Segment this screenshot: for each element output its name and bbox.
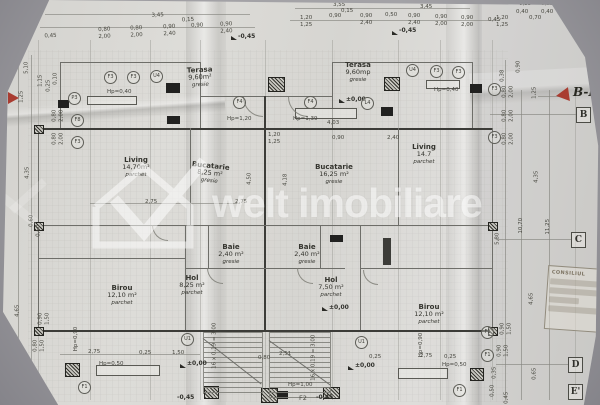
window-sill [398, 368, 448, 379]
hp-label: Hp=0,40 [434, 87, 458, 93]
dim-label: 5,10 [24, 62, 30, 74]
dim-label: 0,90 [332, 136, 344, 142]
room-floor: gresie [277, 259, 337, 266]
wall-segment [38, 330, 492, 332]
room-label-birou-left: Birou 12,10 m² parchet [92, 284, 152, 306]
section-triangle-icon [8, 92, 19, 104]
wall-segment [264, 96, 266, 332]
dim-label: 2,75 [235, 200, 247, 206]
dim-label: 4,03 [327, 121, 339, 127]
dim-label: 2,00 [509, 133, 515, 145]
room-label-terasa-left: Terasa 9,60m² gresie [169, 64, 230, 89]
dimension-line [521, 90, 522, 400]
level-label: ±0,00 [187, 360, 207, 367]
grid-marker: U4 [150, 70, 163, 83]
room-label-hol-left: Hol 8,25 m² parchet [162, 274, 222, 296]
grid-marker: F3 [488, 131, 501, 144]
window-sill [87, 96, 137, 105]
grid-marker: F1 [78, 381, 91, 394]
stamp-text-row [549, 296, 579, 304]
wall-segment [38, 258, 185, 259]
grid-marker: F3 [104, 71, 117, 84]
column [34, 327, 44, 336]
wall-segment [472, 62, 473, 128]
dim-label: 0,50 [385, 13, 397, 19]
dim-label: 2,40 [387, 136, 399, 142]
dim-label: 1,50 [40, 340, 46, 352]
dim-label: 2,00 [461, 23, 473, 29]
dim-label: 2,00 [59, 110, 65, 122]
dim-label: 2,00 [98, 35, 110, 41]
dim-label: 0,90 [408, 14, 420, 20]
dim-label: 0,25 [369, 355, 381, 361]
dim-label: 1,15 [38, 75, 44, 87]
stamp-text-row [548, 305, 600, 315]
room-label-hol-right: Hol 7,50 m² parchet [301, 276, 361, 298]
dim-label: 2,00 [435, 22, 447, 28]
hp-label: Hp=1,00 [288, 382, 312, 388]
dim-label: 2,00 [509, 110, 515, 122]
column [470, 368, 484, 381]
hp-label: Hp=0,90 [418, 333, 424, 357]
dim-label: 4,35 [25, 167, 31, 179]
dim-label: 1,20 [268, 133, 280, 139]
dimension-line [18, 55, 19, 390]
dim-label: 0,90 [11, 57, 17, 69]
column [58, 100, 69, 108]
column [65, 363, 80, 377]
dim-label: 0,35 [33, 374, 39, 386]
dim-label: 2,40 [163, 32, 175, 38]
grid-marker: F1 [453, 384, 466, 397]
grid-marker: F4 [304, 96, 317, 109]
dim-label: 3,45 [152, 13, 164, 19]
dim-label: 0,95 [8, 373, 14, 385]
stamp-title: CONSILIUL [552, 269, 600, 279]
grid-letter: E' [568, 384, 583, 400]
grid-marker: F3 [430, 65, 443, 78]
grid-line [150, 40, 151, 400]
dim-label: 2,00 [130, 33, 142, 39]
room-area: 2,40 m² [277, 251, 337, 258]
dim-label: 0,80 [33, 340, 39, 352]
dim-label: 0,40 [516, 10, 528, 16]
f2-label: F2 [299, 395, 307, 402]
grid-marker: F1 [481, 349, 494, 362]
dim-label: 2,75 [145, 200, 157, 206]
stair-note: 16 x 0,19 = 3,00 [311, 335, 317, 381]
grid-letter: D [568, 357, 583, 373]
section-label: B-B [573, 85, 599, 99]
dim-label: 0,80 [502, 133, 508, 145]
dim-label: 1,25 [19, 91, 25, 103]
section-triangle-icon [555, 87, 570, 103]
column [268, 77, 285, 92]
dim-label: 0,40 [541, 10, 553, 16]
column [330, 235, 343, 242]
level-label: -0,45 [316, 394, 333, 401]
column [381, 107, 393, 116]
dim-label: 2,00 [59, 133, 65, 145]
photo-of-floor-plan: 3,45 0,45 0,80 2,00 0,80 2,00 0,90 2,40 … [0, 0, 600, 405]
wall-segment [360, 268, 492, 269]
room-label-baie-left: Baie 2,40 m² gresie [201, 243, 261, 265]
dimension-line [295, 8, 470, 9]
level-flag-icon [231, 36, 237, 40]
hp-label: Hp=0,90 [73, 327, 79, 351]
room-area: 14,70m² [106, 164, 166, 171]
hp-label: Hp=0,50 [99, 361, 123, 367]
dim-label: 4,65 [529, 293, 535, 305]
dimension-line [496, 239, 572, 240]
dim-label: 5,80 [495, 233, 501, 245]
dim-label: 0,90 [435, 15, 447, 21]
room-area: 2,40 m² [201, 251, 261, 258]
room-floor: gresie [328, 77, 388, 84]
dimension-line [90, 203, 240, 204]
room-area: 12,10 m² [399, 311, 459, 318]
dim-label: 0,90 [516, 61, 522, 73]
dim-label: 1,50 [172, 351, 184, 357]
room-label-bucatarie-right: Bucatarie 16,25 m² gresie [303, 163, 365, 185]
dim-label: 0,25 [46, 80, 52, 92]
dim-label: 1,20 [496, 16, 508, 22]
room-label-baie-right: Baie 2,40 m² gresie [277, 243, 337, 265]
dim-label: 1,25 [268, 140, 280, 146]
stamp-text-row [550, 278, 600, 288]
hp-label: Hp=1,39 [293, 116, 317, 122]
grid-marker: U1 [355, 336, 368, 349]
stair-note: 16 x 0,19 = 3,00 [212, 323, 218, 369]
room-label-living-left: Living 14,70m² parchet [106, 156, 166, 178]
dim-label: 1,50 [45, 313, 51, 325]
level-label: -0,45 [238, 33, 255, 40]
grid-marker: F3 [71, 136, 84, 149]
column [34, 125, 44, 134]
dim-label: 2,00 [509, 86, 515, 98]
dim-label: 0,45 [44, 34, 56, 40]
hp-label: Hp=0,50 [442, 362, 466, 368]
dim-label: 0,45 [504, 392, 510, 404]
column [470, 84, 482, 93]
dim-label: 0,90 [500, 323, 506, 335]
room-floor: parchet [106, 172, 166, 179]
dim-label: 1,20 [300, 16, 312, 22]
dim-label: 4,18 [283, 174, 289, 186]
dim-label: 1,25 [300, 23, 312, 29]
dimension-line [496, 364, 568, 365]
level-flag-icon [348, 366, 354, 370]
level-flag-icon [339, 99, 345, 103]
room-area: 16,25 m² [303, 171, 365, 178]
room-floor: parchet [394, 159, 454, 166]
dim-label: 0,90 [461, 16, 473, 22]
grid-line [440, 40, 441, 400]
room-floor: parchet [92, 300, 152, 307]
dim-label: 0,80 [502, 110, 508, 122]
room-label-terasa-right: Terasa 9,60mp gresie [328, 61, 388, 83]
grid-letter: B [576, 107, 591, 123]
dim-group-top-left: 3,45 0,45 0,80 2,00 0,80 2,00 0,90 2,40 … [0, 0, 261, 56]
dim-label: 2,40 [220, 29, 232, 35]
dim-label: 0,65 [532, 368, 538, 380]
grid-marker: F3 [127, 71, 140, 84]
dim-label: 2,75 [88, 350, 100, 356]
paper: 3,45 0,45 0,80 2,00 0,80 2,00 0,90 2,40 … [0, 0, 600, 405]
room-floor: gresie [303, 179, 365, 186]
dim-label: 4,50 [247, 173, 253, 185]
dim-label: 0,25 [444, 355, 456, 361]
dim-label: 0,35 [519, 2, 531, 8]
level-flag-icon [180, 364, 186, 368]
grid-marker: L4 [361, 97, 374, 110]
grid-marker: F4 [233, 96, 246, 109]
dim-label: 0,35 [541, 2, 553, 8]
stamp-box: CONSILIUL [544, 265, 600, 333]
dim-label: 0,80 [258, 356, 270, 362]
room-label-birou-right: Birou 12,10 m² parchet [399, 303, 459, 325]
dim-label: 0,50 [490, 385, 496, 397]
grid-marker: F8 [71, 114, 84, 127]
dim-label: 0,38 [500, 70, 506, 82]
hp-label: Hp=0,40 [107, 89, 131, 95]
grid-marker: F3 [488, 83, 501, 96]
grid-line [90, 40, 91, 400]
room-floor: parchet [399, 319, 459, 326]
dim-label: 0,80 [52, 133, 58, 145]
dim-label: 0,90 [360, 14, 372, 20]
dim-label: 1,50 [504, 345, 510, 357]
dim-label: 3,45 [420, 5, 432, 11]
hp-label: Hp=1,20 [227, 116, 251, 122]
column [167, 116, 180, 124]
wall-segment [60, 62, 200, 63]
dim-label: 0,85 [21, 375, 27, 387]
dim-label: 2,40 [360, 21, 372, 27]
dim-label: 10,70 [519, 218, 525, 234]
dim-label: 0,35 [492, 367, 498, 379]
level-flag-icon [392, 31, 398, 35]
dim-label: 1,25 [532, 87, 538, 99]
grid-letter: C [571, 232, 586, 248]
room-floor: parchet [162, 290, 222, 297]
room-floor: parchet [301, 292, 361, 299]
dim-label: 0,80 [52, 110, 58, 122]
wall-segment [383, 238, 391, 265]
level-label: -0,45 [399, 27, 416, 34]
grid-marker: F3 [452, 66, 465, 79]
dim-label: 0,90 [38, 313, 44, 325]
dim-label: 11,25 [546, 219, 552, 235]
dim-label: 1,25 [496, 23, 508, 29]
dim-label: 1,50 [507, 323, 513, 335]
staircase [269, 332, 331, 398]
level-label: -0,45 [177, 394, 194, 401]
dim-label: 4,65 [15, 305, 21, 317]
dim-label: 0,90 [329, 14, 341, 20]
grid-marker: U1 [181, 333, 194, 346]
room-area: 9,60mp [328, 69, 388, 76]
grid-marker: P3 [68, 92, 81, 105]
dim-label: 0,25 [139, 351, 151, 357]
column [488, 222, 498, 231]
room-area: 14.7 [394, 151, 454, 158]
dim-label: 2,40 [408, 21, 420, 27]
dim-label: 2,51 [279, 352, 291, 358]
dim-label: 0,15 [341, 9, 353, 15]
dim-label: 0,80 [502, 86, 508, 98]
dim-label: 0,90 [191, 23, 203, 29]
dim-label: 0,10 [53, 73, 59, 85]
wall-segment [38, 225, 492, 226]
room-area: 7,50 m² [301, 284, 361, 291]
stamp-text-row [549, 287, 600, 297]
level-label: ±0,00 [329, 304, 349, 311]
dimension-line [549, 90, 550, 400]
level-flag-icon [322, 307, 328, 311]
room-area: 8,25 m² [162, 282, 222, 289]
dim-label: 4,35 [534, 171, 540, 183]
dim-label: 0,60 [36, 225, 42, 237]
grid-marker: F1 [481, 326, 494, 339]
level-label: ±0,00 [355, 362, 375, 369]
room-label-living-right: Living 14.7 parchet [394, 143, 454, 165]
room-area: 12,10 m² [92, 292, 152, 299]
room-floor: gresie [201, 259, 261, 266]
dim-label: 0,90 [497, 345, 503, 357]
dim-label: 0,70 [529, 16, 541, 22]
grid-marker: U4 [406, 64, 419, 77]
